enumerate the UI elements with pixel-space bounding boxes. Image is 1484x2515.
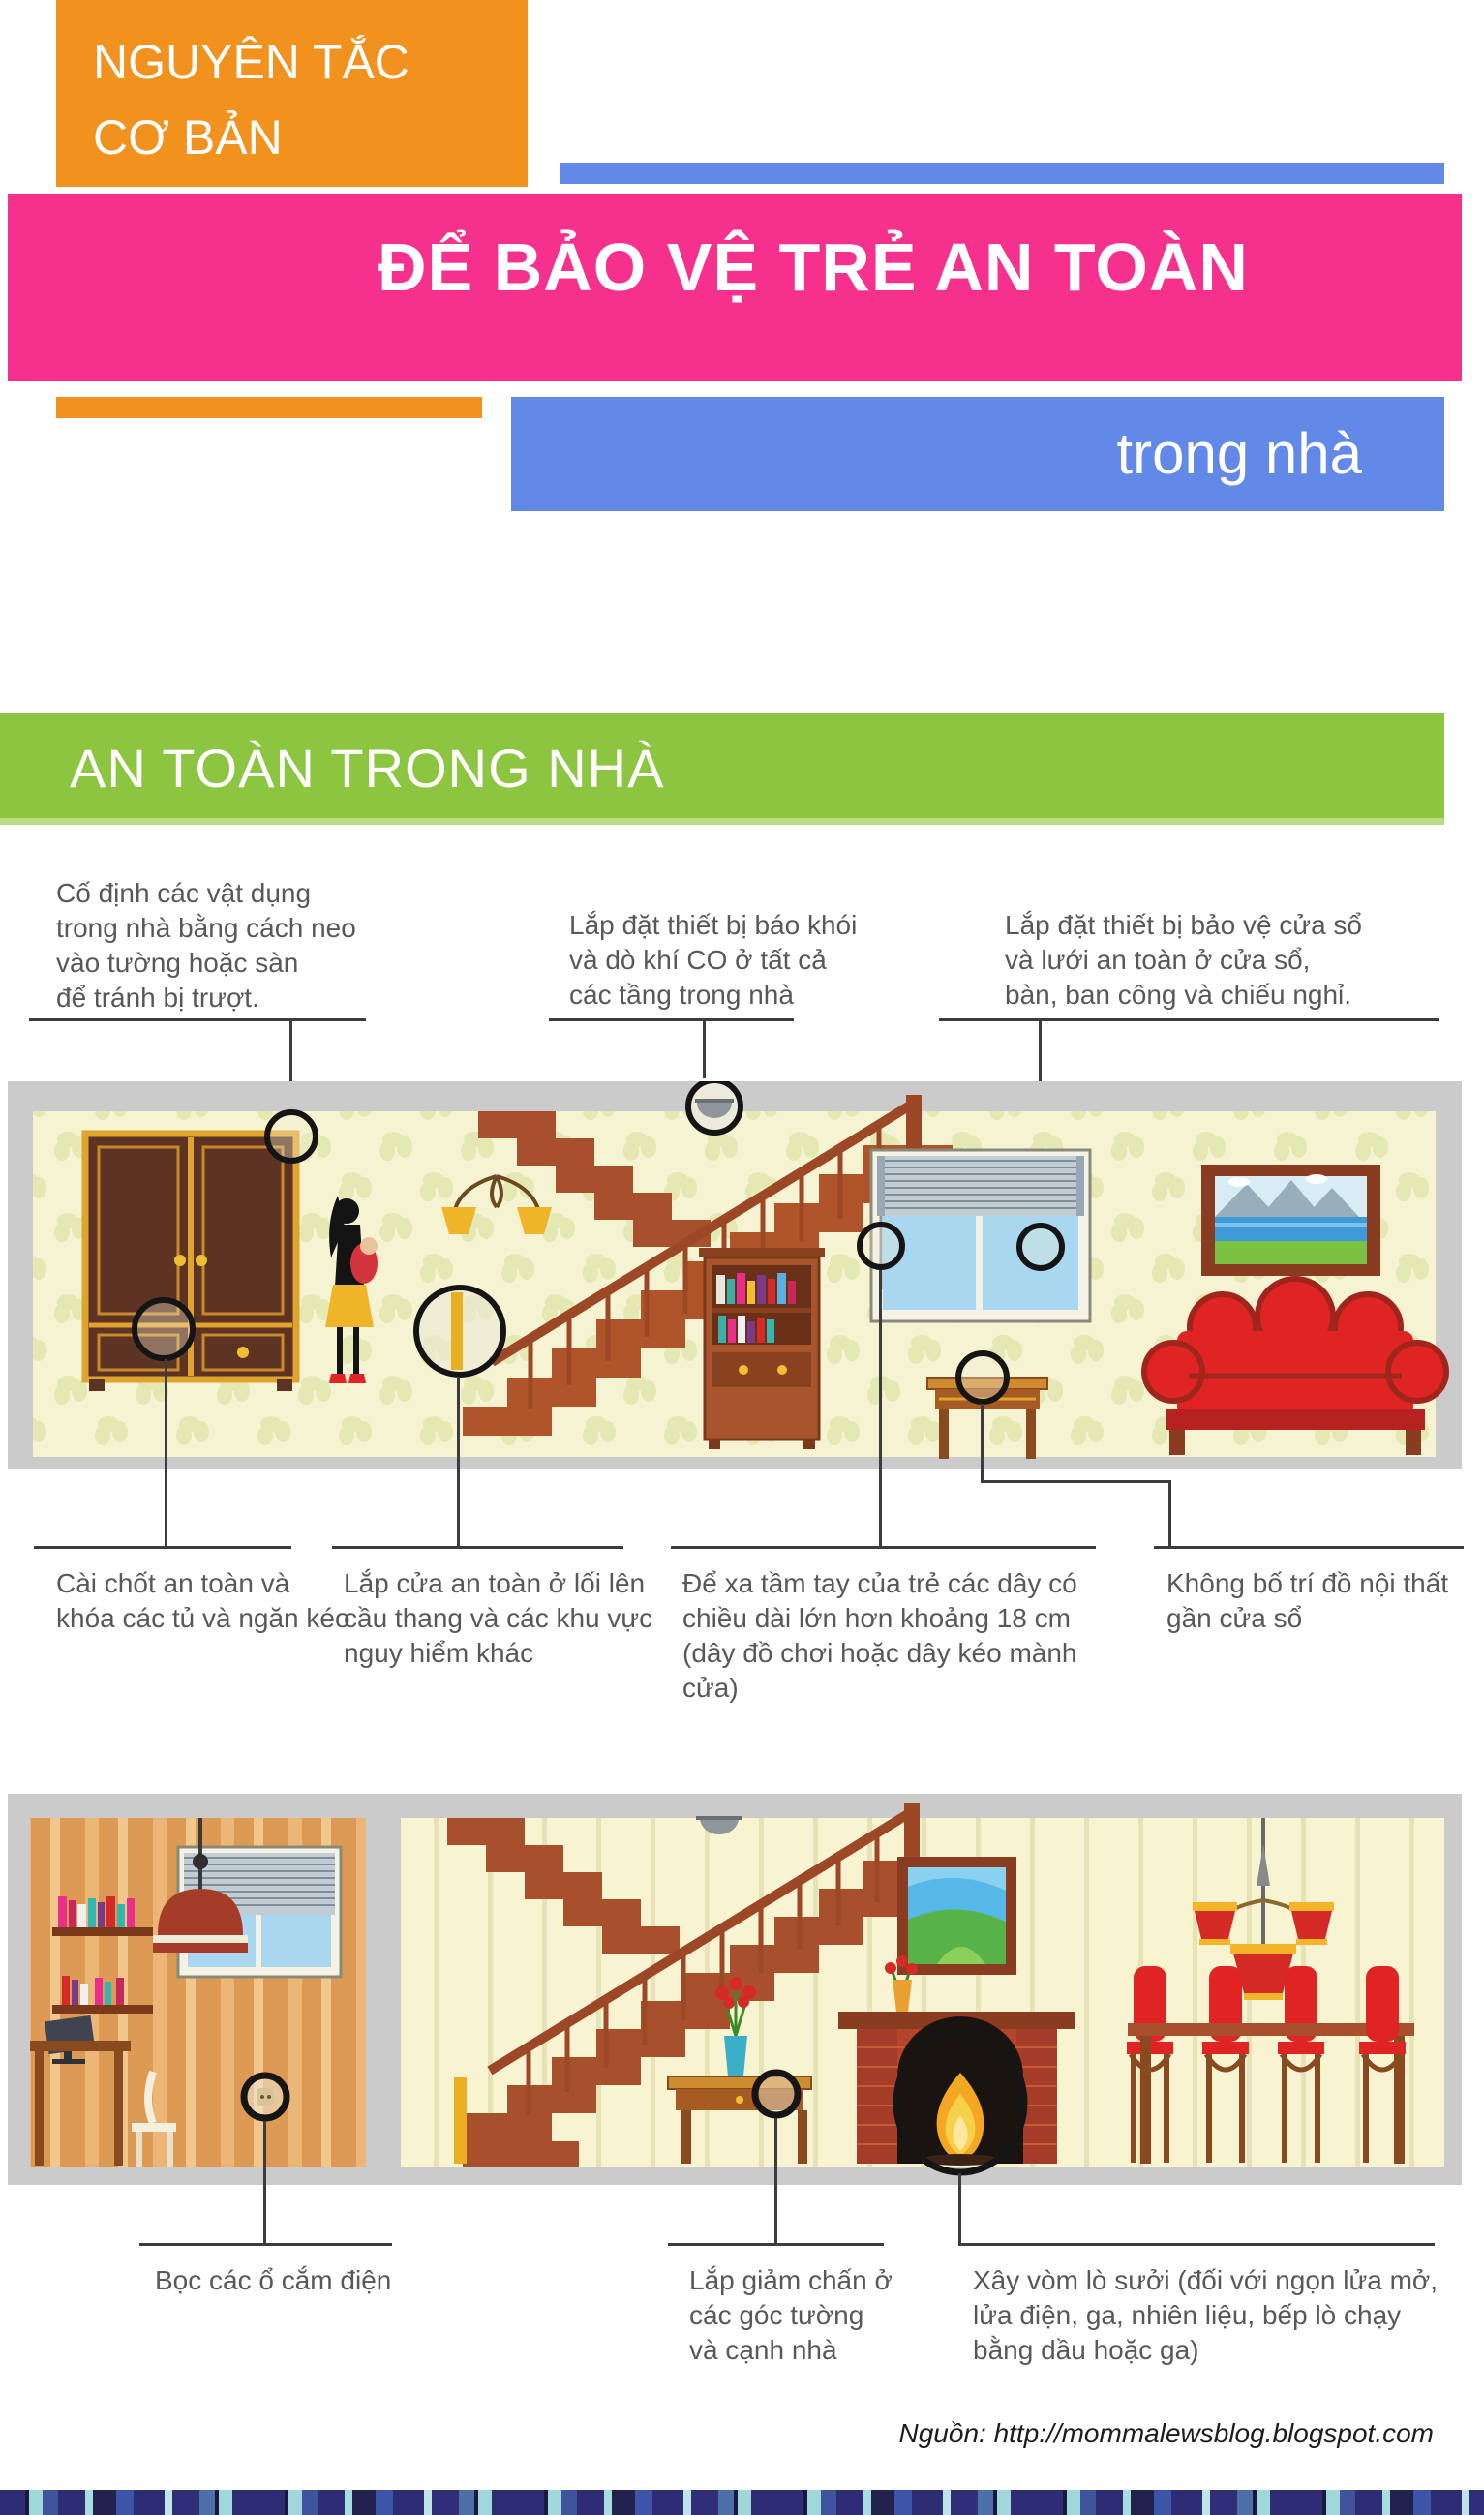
annotation-cabinet-locks: Cài chốt an toàn và khóa các tủ và ngăn … — [56, 1566, 366, 1636]
section-title: AN TOÀN TRONG NHÀ — [70, 737, 664, 800]
annotation-fireplace-screen: Xây vòm lò sưởi (đối với ngọn lửa mở, lử… — [973, 2263, 1457, 2368]
callout-connector — [981, 1404, 984, 1483]
annotation-outlet-covers: Bọc các ổ cắm điện — [155, 2263, 465, 2298]
callout-line — [939, 1018, 1439, 1021]
callout-connector — [774, 2118, 777, 2243]
callout-line — [1154, 1546, 1464, 1549]
highlight-table-near-window — [958, 1353, 1007, 1402]
callout-connector — [879, 1270, 882, 1549]
callout-line — [139, 2243, 392, 2246]
callout-line — [671, 1546, 1096, 1549]
orange-accent-strip — [56, 397, 482, 418]
highlight-table-corner — [755, 2073, 798, 2115]
highlight-drawer-lock — [135, 1300, 193, 1358]
callout-line — [332, 1546, 623, 1549]
callout-line — [668, 2243, 884, 2246]
annotation-corner-guards: Lắp giảm chấn ở các góc tường và cạnh nh… — [689, 2263, 941, 2368]
highlight-anchor-point — [267, 1112, 316, 1161]
kicker-text: NGUYÊN TẮC CƠ BẢN — [93, 25, 409, 175]
callout-connector — [981, 1480, 1171, 1483]
stair-gate-post — [454, 2077, 467, 2164]
annotation-cords: Để xa tầm tay của trẻ các dây có chiều d… — [682, 1566, 1137, 1706]
callout-line — [34, 1546, 291, 1549]
callout-connector — [1168, 1480, 1171, 1549]
callout-line — [29, 1018, 366, 1021]
wardrobe-illustration — [85, 1134, 296, 1391]
highlight-window-guard — [1019, 1226, 1062, 1268]
annotation-safety-gate: Lắp cửa an toàn ở lối lên cầu thang và c… — [344, 1566, 663, 1671]
callout-line — [958, 2243, 1435, 2246]
page-subtitle: trong nhà — [1116, 420, 1362, 487]
annotation-window-guard: Lắp đặt thiết bị bảo vệ cửa sổ và lưới a… — [1005, 908, 1450, 1013]
highlight-stair-gate — [416, 1288, 503, 1375]
smoke-detector-icon — [688, 1081, 741, 1133]
callout-connector — [263, 2121, 266, 2243]
painting-illustration-2 — [897, 1857, 1016, 1975]
callout-connector — [457, 1377, 460, 1549]
callout-connector — [703, 1018, 706, 1078]
subtitle-box: trong nhà — [511, 397, 1444, 511]
callout-line — [549, 1018, 794, 1021]
top-blue-bar — [560, 163, 1444, 184]
infographic-poster: NGUYÊN TẮC CƠ BẢN ĐỂ BẢO VỆ TRẺ AN TOÀN … — [0, 0, 1484, 2515]
bottom-mosaic-strip — [0, 2490, 1484, 2515]
painting-illustration — [1201, 1165, 1380, 1276]
kicker-box: NGUYÊN TẮC CƠ BẢN — [56, 0, 528, 187]
page-title: ĐỂ BẢO VỆ TRẺ AN TOÀN — [378, 228, 1249, 306]
annotation-smoke-detector: Lắp đặt thiết bị báo khói và dò khí CO ở… — [569, 908, 956, 1013]
source-credit: Nguồn: http://mommalewsblog.blogspot.com — [899, 2418, 1435, 2449]
room-scene-1 — [8, 1081, 1462, 1469]
annotation-furniture-window: Không bố trí đồ nội thất gần cửa sổ — [1166, 1566, 1476, 1636]
callout-connector — [958, 2173, 961, 2243]
title-banner: ĐỂ BẢO VỆ TRẺ AN TOÀN — [8, 194, 1462, 381]
room-scene-2 — [8, 1794, 1462, 2185]
bookshelf-cabinet-illustration — [699, 1248, 825, 1449]
annotation-anchor-furniture: Cố định các vật dụng trong nhà bằng cách… — [56, 876, 385, 1015]
highlight-blind-cord — [860, 1225, 902, 1267]
section-banner: AN TOÀN TRONG NHÀ — [0, 713, 1444, 825]
power-outlet-icon — [244, 2076, 287, 2118]
callout-connector — [165, 1359, 167, 1549]
